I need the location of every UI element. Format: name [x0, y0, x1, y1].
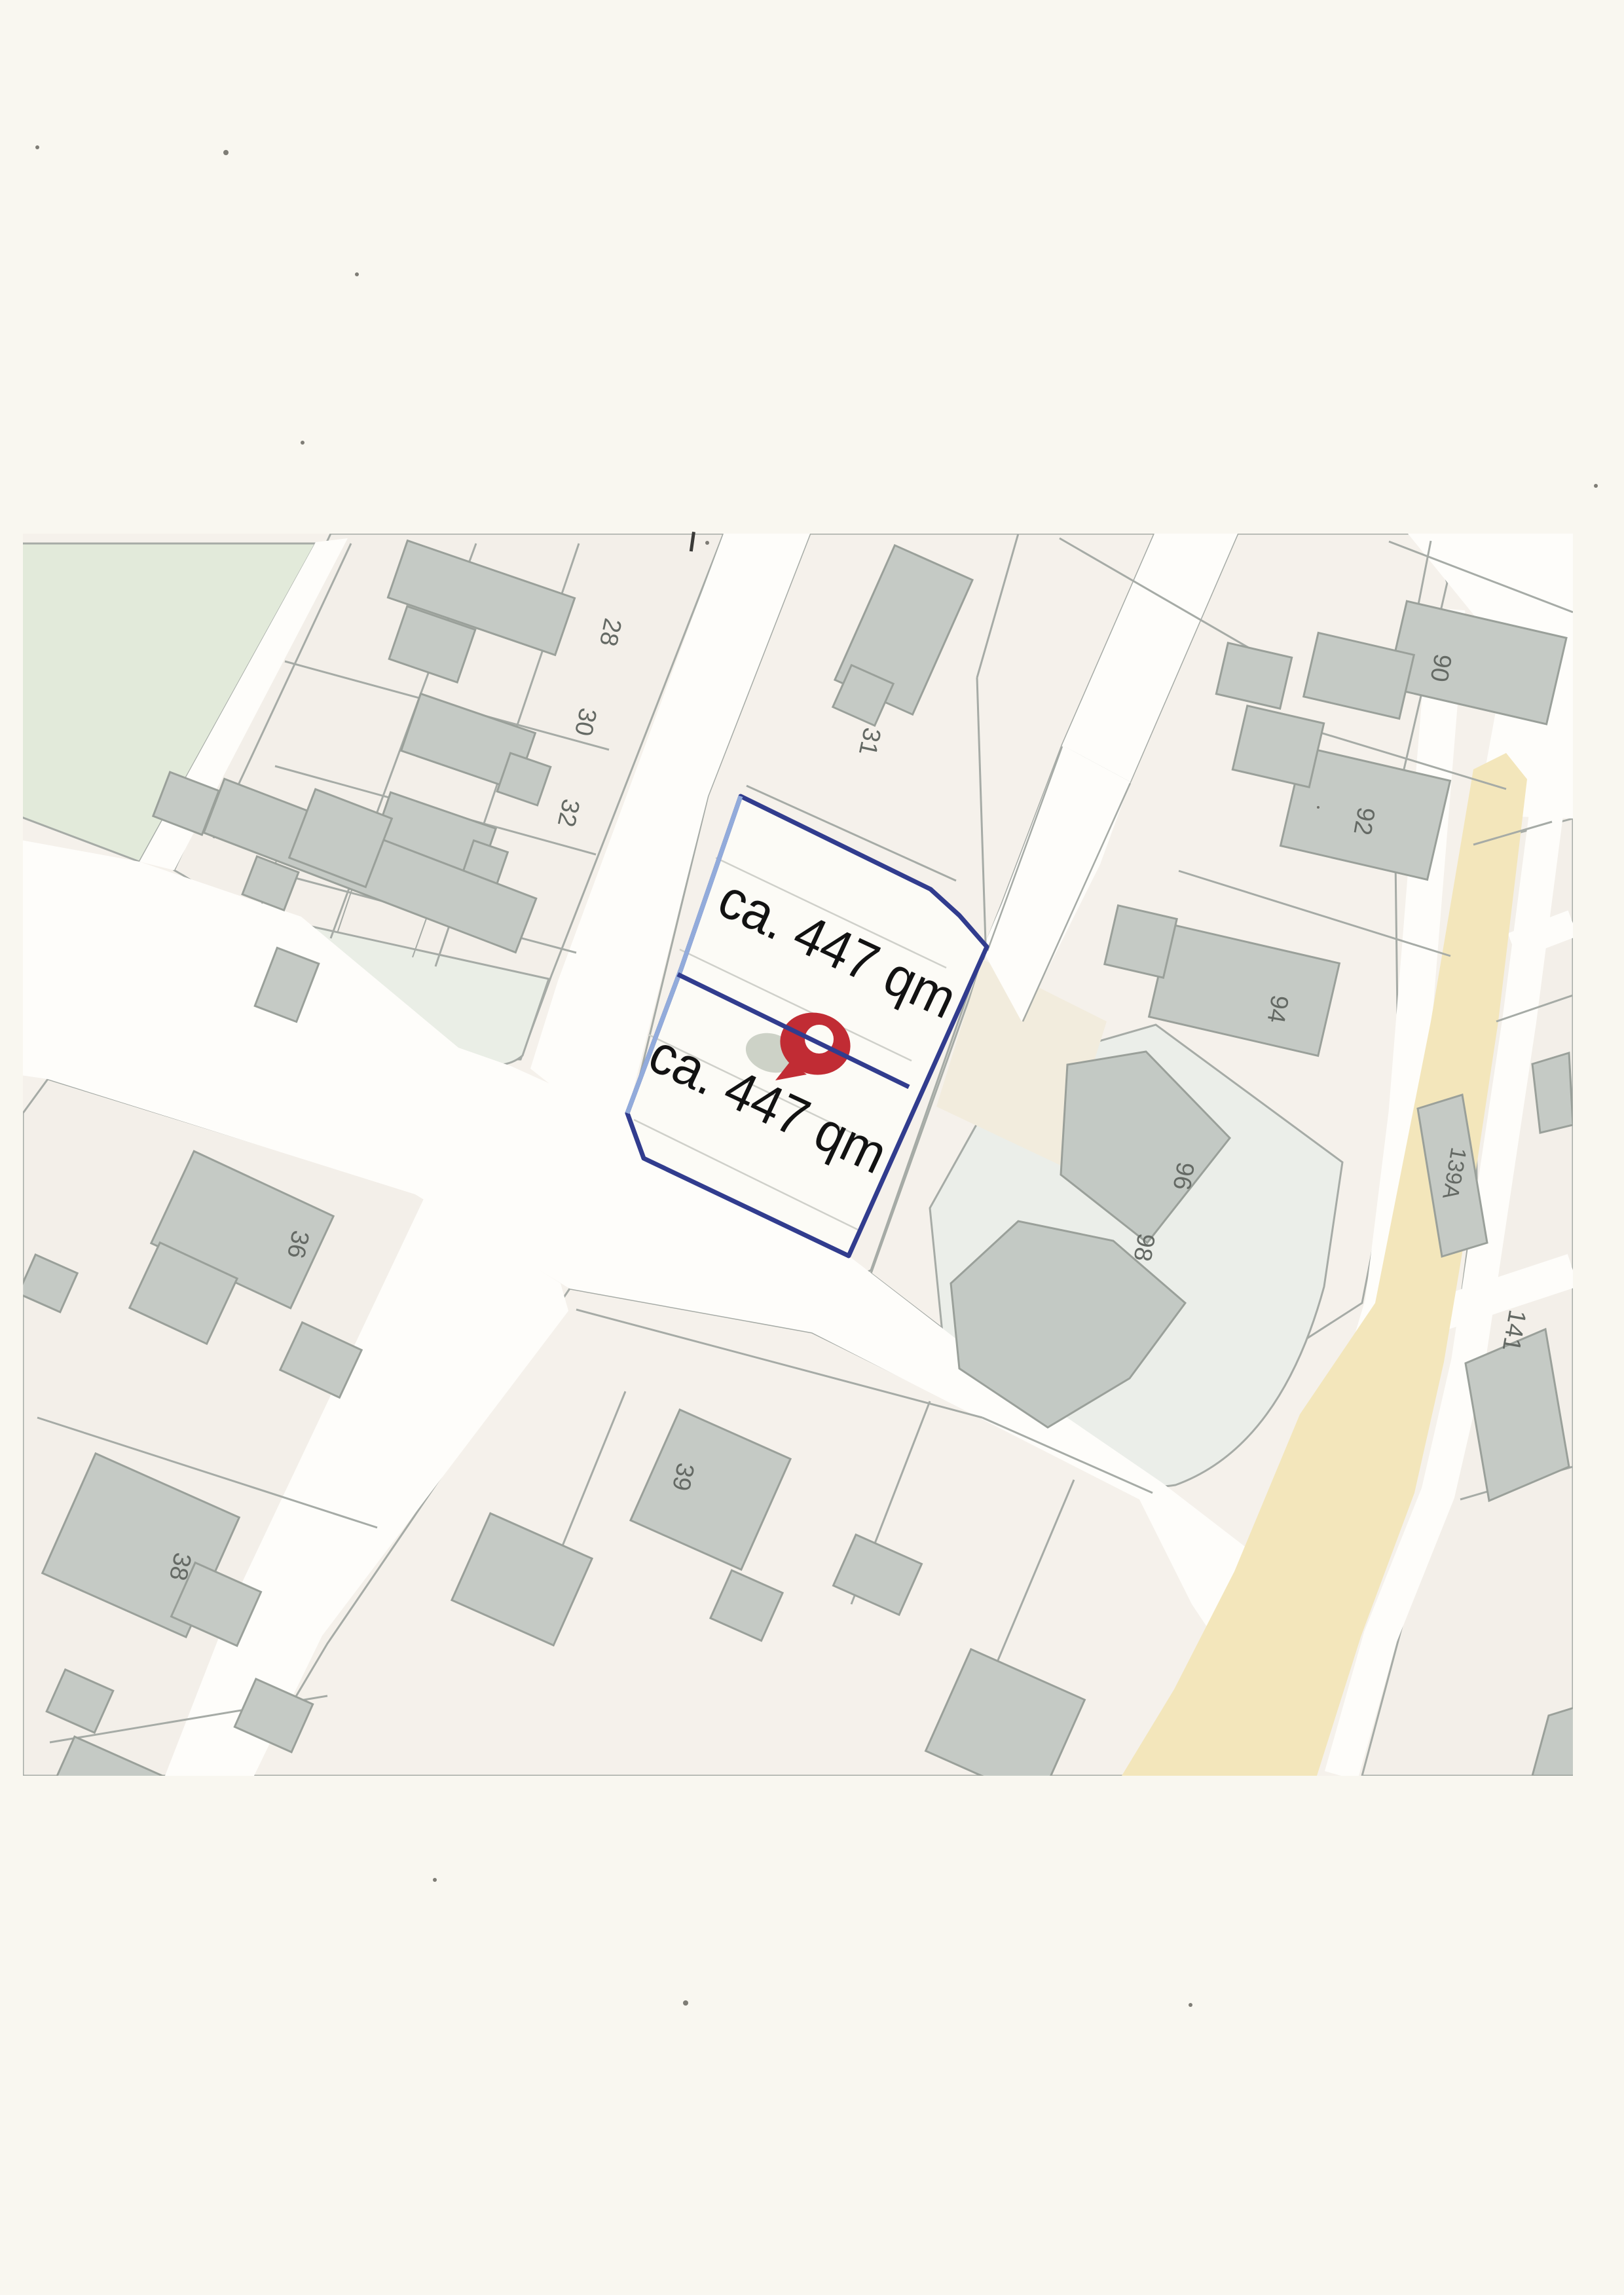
- svg-text:31: 31: [853, 725, 886, 758]
- svg-text:98: 98: [1128, 1232, 1160, 1264]
- svg-text:32: 32: [552, 796, 585, 829]
- svg-text:28: 28: [594, 615, 627, 648]
- svg-text:36: 36: [282, 1228, 314, 1260]
- svg-text:96: 96: [1167, 1160, 1199, 1192]
- svg-text:90: 90: [1424, 652, 1456, 684]
- svg-text:30: 30: [569, 705, 602, 738]
- svg-text:38: 38: [164, 1550, 196, 1583]
- svg-text:92: 92: [1348, 805, 1380, 837]
- svg-text:94: 94: [1261, 993, 1293, 1025]
- svg-text:39: 39: [667, 1460, 699, 1493]
